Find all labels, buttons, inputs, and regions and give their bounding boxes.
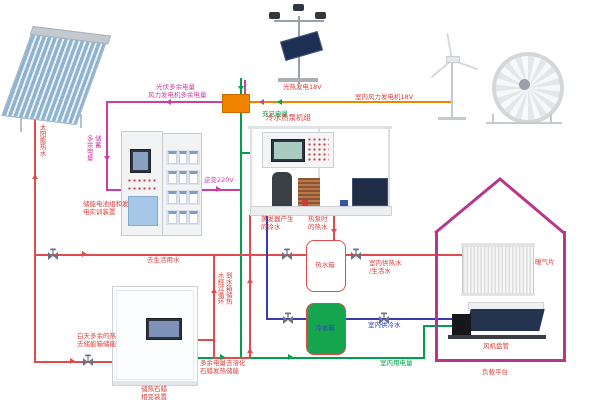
house-wall: [563, 231, 566, 361]
fan-coil-unit: [448, 298, 548, 342]
valve-icon: [81, 352, 95, 366]
label-cold-water-tank: 冷水箱: [306, 324, 344, 332]
label-radiator: 暖气片: [535, 258, 555, 266]
heat-pump-hot-pipe: [333, 215, 335, 241]
wind-turbine: [428, 40, 488, 125]
house-wall: [435, 231, 438, 361]
label-to-domestic-water: 去生活用水: [147, 256, 180, 264]
solar-water-pipe: [34, 110, 36, 362]
control-cabinet: [121, 131, 163, 236]
lamp-icon: [293, 4, 304, 11]
label-paraffin-device: 储热石蜡 相变装置: [134, 385, 174, 401]
label-indoor-hot-supply: 室内供热水 /生活水: [369, 259, 402, 275]
heat-pump-bench: [248, 124, 392, 216]
label-evaporator-chilled-water: 蒸发器产生 的冷水: [261, 215, 294, 231]
valve-icon: [46, 246, 60, 260]
label-storage-training-device: 储能电池组和发 电实训装置: [83, 200, 129, 216]
return-hot-pipe: [249, 215, 251, 358]
label-fan-coil: 风机盘管: [483, 342, 509, 350]
valve-icon: [281, 310, 295, 324]
label-daytime-surplus-heat: 白天多余的热 去储能箱储能: [77, 332, 116, 348]
label-inverter: 逆变220V: [204, 176, 234, 184]
radiator: [462, 246, 534, 294]
flow-arrow-icon: [238, 86, 244, 91]
house-wall: [435, 359, 566, 362]
label-wind-surplus: 风力发电机多余电量: [148, 91, 207, 99]
label-water-circulation: 水经过循环 到水箱储热: [216, 272, 232, 314]
label-pv-generation: 光热发电18V: [283, 83, 322, 91]
flow-arrow-icon: [166, 99, 171, 105]
flow-arrow-icon: [216, 186, 221, 192]
flow-arrow-icon: [70, 358, 75, 364]
flow-arrow-icon: [277, 99, 282, 105]
label-heat-pump-unit: 冷水热泵机组: [266, 113, 311, 122]
paraffin-phase-change-cabinet: [112, 286, 198, 386]
flow-arrow-icon: [247, 348, 253, 353]
valve-icon: [349, 246, 363, 260]
surplus-power-wire: [106, 101, 108, 190]
flow-arrow-icon: [32, 174, 38, 179]
surplus-power-wire: [106, 189, 122, 191]
label-heat-pump-hot-water: 热泵时 的热水: [308, 215, 328, 231]
fan-hub-icon: [519, 79, 530, 90]
label-load-platform: 负载平台: [482, 368, 508, 376]
indoor-cold-pipe: [344, 318, 462, 320]
paraffin-loop-pipe: [213, 254, 215, 358]
lamp-icon: [315, 12, 326, 19]
label-solar-hot-water: 太阳能热水: [38, 124, 46, 168]
label-pv-surplus: 光伏多余电量: [156, 83, 195, 91]
flow-arrow-icon: [288, 354, 293, 360]
surplus-power-wire: [106, 101, 222, 103]
flow-arrow-icon: [82, 251, 87, 257]
label-indoor-wind-generation: 室内风力发电机18V: [355, 93, 413, 101]
label-indoor-cold-supply: 室内供冷水: [368, 321, 401, 329]
heat-pump-control-panel: [262, 132, 334, 168]
label-hot-water-tank: 热水箱: [306, 261, 344, 269]
battery-cabinet: [162, 133, 202, 236]
valve-icon: [280, 246, 294, 260]
compressor: [272, 172, 292, 208]
lamp-icon: [269, 12, 280, 19]
fan-stand: [486, 114, 562, 124]
sufficient-power-wire: [240, 111, 242, 358]
flow-arrow-icon: [104, 156, 110, 161]
flow-arrow-icon: [331, 229, 337, 234]
condenser-panel: [352, 178, 388, 206]
label-indoor-power-use: 室内用电量: [380, 359, 413, 367]
flow-arrow-icon: [259, 99, 264, 105]
junction-box: [222, 94, 250, 113]
solar-thermal-collector: [6, 26, 106, 132]
energy-system-diagram: 太阳能热水 光伏多余电量 风力发电机多余电量 光热发电18V 室内风力发电机18…: [0, 0, 600, 419]
indoor-power-wire: [423, 325, 425, 359]
label-surplus-storage: 多余电量储蓄: [85, 135, 101, 161]
flow-arrow-icon: [247, 278, 253, 283]
label-surplus-melt-paraffin: 多余电量去溶化 石蜡发热储能: [200, 359, 246, 375]
